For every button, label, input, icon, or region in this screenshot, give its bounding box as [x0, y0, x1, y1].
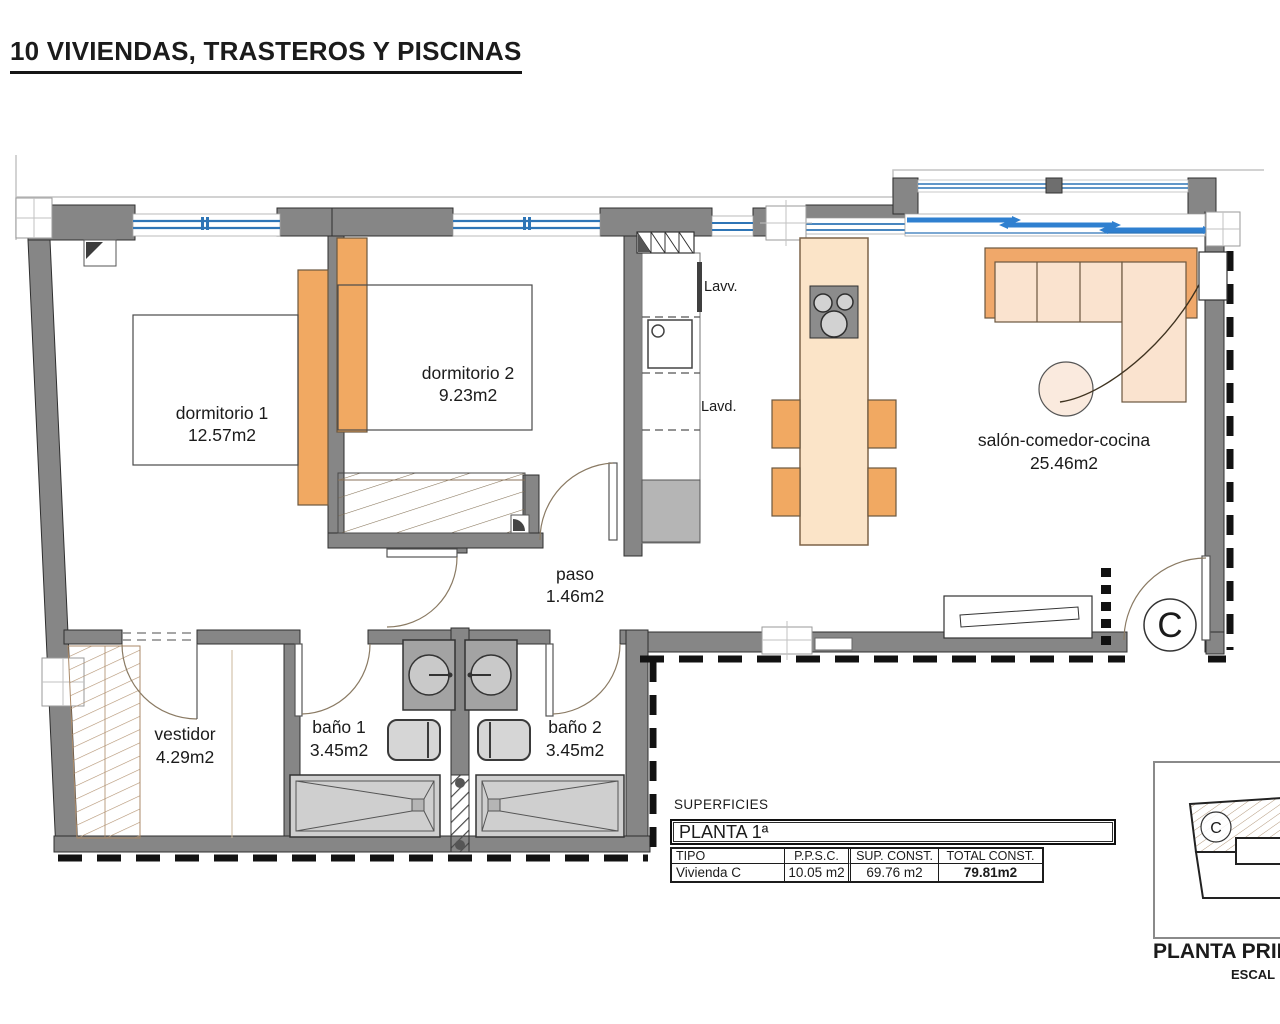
key-plan: C: [1154, 762, 1280, 938]
label-vestidor: vestidor: [154, 724, 215, 744]
key-plan-unit-label: C: [1210, 820, 1222, 837]
kitchen-island: [772, 238, 896, 545]
toilet-bano2: [478, 720, 530, 760]
cell-ppsc: 10.05 m2: [784, 863, 848, 881]
washbasin-bano2: [465, 640, 517, 710]
dorm2-furniture: [337, 238, 532, 533]
label-lavv: Lavv.: [704, 279, 738, 295]
tv-unit: [1199, 252, 1227, 300]
door-dorm2: [540, 463, 617, 540]
floor-label: PLANTA 1ª: [679, 822, 768, 843]
col-header-total-const: TOTAL CONST.: [938, 849, 1042, 863]
unit-marker-label: C: [1157, 606, 1182, 645]
wardrobe-strip: [337, 238, 367, 432]
col-header-tipo: TIPO: [672, 849, 784, 863]
hob-icon: [810, 286, 858, 338]
cell-tipo: Vivienda C: [672, 863, 784, 881]
laundry-column: [637, 232, 702, 543]
window-galeria: [712, 216, 753, 236]
counter-block: [642, 480, 700, 542]
cell-total-const: 79.81m2: [938, 863, 1042, 881]
door-bano2: [546, 644, 620, 716]
wardrobe-strip: [298, 270, 328, 505]
side-table: [1039, 362, 1093, 416]
label-salon: salón-comedor-cocina: [978, 430, 1150, 450]
counter-edge: [697, 262, 702, 312]
salon-furniture: [944, 248, 1227, 652]
pillar-right-wall: [1206, 212, 1240, 246]
floor-label-box: PLANTA 1ª: [670, 819, 1116, 845]
pillar-top-left: [16, 198, 52, 238]
washing-machine-icon: [648, 320, 692, 368]
floor-plan: C dormitorio 1 12.57m2 dormitorio 2 9.23…: [0, 0, 1280, 1024]
shower-bano2: [476, 775, 624, 837]
key-plan-caption: PLANTA PRIM: [1153, 940, 1280, 964]
sofa-cushions: [995, 262, 1122, 322]
corner-marker: [84, 240, 116, 266]
area-dormitorio2: 9.23m2: [439, 385, 497, 405]
unit-marker: C: [1144, 599, 1196, 651]
toilet-bano1: [388, 720, 440, 760]
area-vestidor: 4.29m2: [156, 747, 214, 767]
label-bano2: baño 2: [548, 717, 602, 737]
label-dormitorio1: dormitorio 1: [176, 403, 268, 423]
chaise: [1122, 262, 1186, 402]
pillar-salon-south: [762, 621, 852, 660]
dorm1-furniture: [133, 270, 328, 505]
sliding-door-band: [905, 214, 1212, 236]
area-bano1: 3.45m2: [310, 740, 368, 760]
label-lavd: Lavd.: [701, 399, 736, 415]
surfaces-table: TIPO P.P.S.C. SUP. CONST. TOTAL CONST. V…: [670, 847, 1044, 883]
area-salon: 25.46m2: [1030, 453, 1098, 473]
area-dormitorio1: 12.57m2: [188, 425, 256, 445]
area-paso: 1.46m2: [546, 586, 604, 606]
col-header-ppsc: P.P.S.C.: [784, 849, 848, 863]
door-bano1: [295, 644, 370, 716]
cell-sup-const: 69.76 m2: [848, 863, 938, 881]
label-bano1: baño 1: [312, 717, 366, 737]
closet: [338, 473, 529, 533]
label-dormitorio2: dormitorio 2: [422, 363, 514, 383]
window-kitchen-fixed: [806, 218, 905, 234]
window-dorm2: [453, 214, 600, 236]
shaft: [451, 775, 469, 852]
opening-dashed: [122, 633, 197, 640]
label-paso: paso: [556, 564, 594, 584]
door-dorm1: [387, 549, 457, 627]
key-plan-scale-label: ESCAL: [1231, 967, 1275, 982]
area-bano2: 3.45m2: [546, 740, 604, 760]
vent-grille-icon: [637, 232, 694, 253]
surfaces-heading: SUPERFICIES: [674, 797, 768, 812]
washbasin-bano1: [403, 640, 455, 710]
col-header-sup-const: SUP. CONST.: [848, 849, 938, 863]
window-terrace: [918, 178, 1188, 193]
shower-bano1: [290, 775, 440, 837]
sideboard: [944, 596, 1092, 638]
window-dorm1: [133, 214, 280, 236]
